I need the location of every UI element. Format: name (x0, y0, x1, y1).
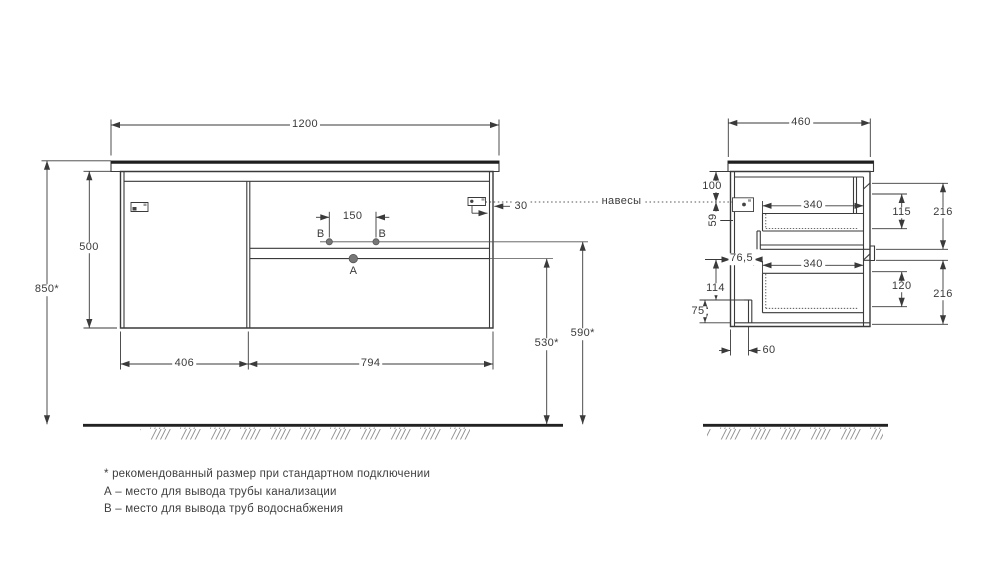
footnote-recommended-size: * рекомендованный размер при стандартном… (104, 466, 430, 483)
technical-drawing-page: 1200 500 850* 406 794 150 30 530* 590* A… (0, 0, 1000, 563)
point-b-left-dot (326, 239, 332, 245)
dim-drawer-width-label: 794 (359, 358, 383, 370)
point-a-label: A (350, 266, 358, 278)
front-view-hardware-icons (131, 198, 488, 214)
dim-hanger-offset-label: 30 (512, 201, 529, 213)
dim-drawer-depth-bottom-label: 340 (801, 260, 825, 272)
dim-hanger-top-offset-label: 100 (700, 181, 724, 193)
dim-door-width-label: 406 (173, 358, 197, 370)
dim-front-height-top-label: 216 (931, 207, 955, 219)
dim-drawer-height-bottom-label: 120 (890, 281, 914, 293)
lower-drawer-box (763, 273, 864, 312)
point-a-dot (349, 254, 357, 262)
dim-plinth-depth-label: 60 (760, 345, 777, 357)
hinge-icon (131, 203, 148, 212)
dim-hanger-inset-label: 59 (708, 211, 720, 228)
dim-drawer-height-top-label: 115 (890, 207, 913, 219)
dim-depth-label: 460 (789, 117, 813, 129)
dim-width-label: 1200 (290, 119, 320, 131)
hanger-bracket-icon (468, 198, 486, 206)
side-view-dimensions (700, 119, 949, 356)
point-b-left-label: B (317, 229, 325, 241)
footnotes: * рекомендованный размер при стандартном… (104, 466, 430, 519)
point-b-right-label: B (379, 229, 387, 241)
front-view (111, 161, 499, 328)
dim-drain-height-label: 530* (533, 338, 561, 350)
front-view-dimensions (42, 120, 583, 425)
side-view (728, 161, 875, 327)
floor-hatching-side (707, 428, 883, 440)
dim-back-clearance-label: 76,5 (728, 253, 755, 265)
dim-height-label: 500 (77, 242, 101, 254)
floor-hatching-front (140, 428, 470, 440)
dim-mount-height-label: 850* (33, 284, 61, 296)
dim-plinth-height-label: 75 (689, 306, 706, 318)
footnote-point-b: В – место для вывода труб водоснабжения (104, 501, 430, 518)
dim-bottom-clearance-label: 114 (704, 283, 727, 295)
dim-supply-height-label: 590* (569, 328, 597, 340)
dim-drawer-depth-top-label: 340 (801, 200, 825, 212)
hangers-line-label: навесы (600, 196, 644, 208)
footnote-point-a: А – место для вывода трубы канализации (104, 484, 430, 501)
dim-front-height-bottom-label: 216 (931, 289, 955, 301)
upper-drawer-box (763, 214, 864, 232)
floor-lines (83, 425, 888, 439)
side-hanger-bracket-icon (733, 198, 754, 212)
dim-supply-spacing-label: 150 (341, 212, 365, 224)
